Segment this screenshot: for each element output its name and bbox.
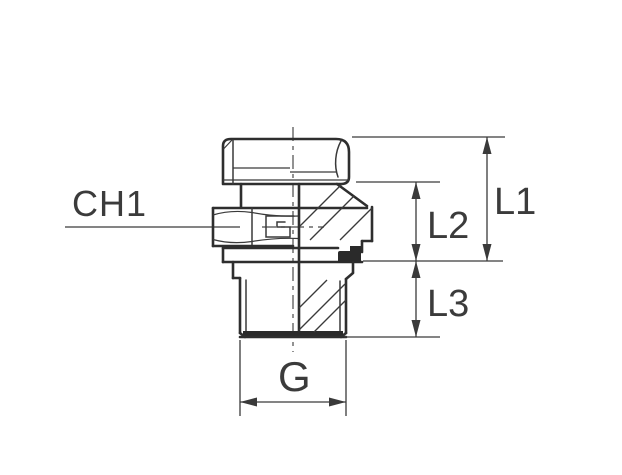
- l1-arrow-down: [483, 244, 492, 261]
- l2-arrow-down: [412, 244, 421, 261]
- dimension-ch1: CH1: [72, 183, 147, 224]
- label-l3: L3: [427, 283, 469, 325]
- g-arrow-right: [329, 398, 346, 407]
- cone-transition: [213, 184, 367, 208]
- l2-arrow-up: [412, 182, 421, 199]
- dimension-l3: L3: [344, 261, 469, 337]
- l3-arrow-down: [412, 320, 421, 337]
- l1-arrow-up: [483, 137, 492, 154]
- label-ch1: CH1: [72, 183, 147, 224]
- label-l2: L2: [427, 205, 469, 247]
- l3-arrow-up: [412, 261, 421, 278]
- g-arrow-left: [240, 398, 257, 407]
- label-g: G: [278, 353, 311, 400]
- top-stud: [223, 139, 349, 184]
- label-l1: L1: [494, 181, 536, 223]
- fitting-technical-drawing: L1 L2 L3 G CH1: [0, 0, 622, 475]
- technical-drawing-page: L1 L2 L3 G CH1: [0, 0, 622, 475]
- section-hatching: [299, 184, 372, 332]
